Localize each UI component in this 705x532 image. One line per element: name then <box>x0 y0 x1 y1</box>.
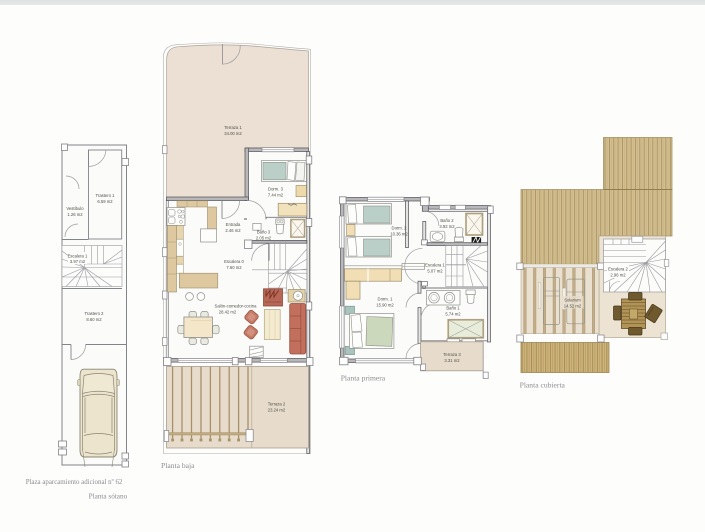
svg-text:Baño 3: Baño 3 <box>257 230 271 235</box>
svg-text:Terraza 3: Terraza 3 <box>443 352 461 357</box>
svg-text:Trastero 1: Trastero 1 <box>96 193 116 198</box>
svg-text:3.31 m2: 3.31 m2 <box>444 358 460 363</box>
svg-text:Escalera 1: Escalera 1 <box>68 254 88 259</box>
svg-text:2.05 m2: 2.05 m2 <box>256 236 272 241</box>
svg-text:Escalera 0: Escalera 0 <box>224 259 244 264</box>
svg-text:Terraza 1: Terraza 1 <box>224 125 242 130</box>
svg-text:10.36 m2: 10.36 m2 <box>390 232 408 237</box>
svg-text:34.00 m2: 34.00 m2 <box>224 131 242 136</box>
svg-text:28.42 m2: 28.42 m2 <box>219 310 237 315</box>
svg-text:7.44 m2: 7.44 m2 <box>268 193 284 198</box>
svg-text:Planta baja: Planta baja <box>161 461 195 470</box>
svg-text:15.90 m2: 15.90 m2 <box>376 303 394 308</box>
svg-text:Entrada: Entrada <box>226 222 241 227</box>
svg-text:Planta sótano: Planta sótano <box>89 493 128 501</box>
svg-text:3.97 m2: 3.97 m2 <box>70 259 86 264</box>
svg-text:Baño 2: Baño 2 <box>440 218 454 223</box>
svg-text:Planta cubierta: Planta cubierta <box>520 380 566 389</box>
svg-text:Terraza 2: Terraza 2 <box>268 402 286 407</box>
svg-text:Escalera 2: Escalera 2 <box>608 267 628 272</box>
svg-text:14.52 m2: 14.52 m2 <box>564 304 582 309</box>
svg-text:Vestíbulo: Vestíbulo <box>66 206 84 211</box>
svg-text:8.60 m2: 8.60 m2 <box>86 317 102 322</box>
svg-text:Baño 1: Baño 1 <box>446 306 460 311</box>
svg-text:5.74 m2: 5.74 m2 <box>445 312 461 317</box>
svg-text:Dorm. 2: Dorm. 2 <box>392 226 408 231</box>
svg-text:2.46 m2: 2.46 m2 <box>225 228 241 233</box>
svg-text:Dorm. 1: Dorm. 1 <box>378 297 394 302</box>
svg-text:7.60 m2: 7.60 m2 <box>226 265 242 270</box>
svg-text:Trastero 2: Trastero 2 <box>85 311 105 316</box>
svg-text:Salón-comedor-cocina: Salón-comedor-cocina <box>215 303 258 308</box>
svg-text:23.24 m2: 23.24 m2 <box>268 408 286 413</box>
svg-text:5.07 m2: 5.07 m2 <box>427 269 443 274</box>
svg-text:3.92 m2: 3.92 m2 <box>439 224 455 229</box>
svg-text:1.26 m2: 1.26 m2 <box>67 212 83 217</box>
svg-text:2.96 m2: 2.96 m2 <box>610 273 626 278</box>
svg-text:Plaza aparcamiento adicional n: Plaza aparcamiento adicional nº 62 <box>26 479 123 486</box>
svg-text:Escalera 1: Escalera 1 <box>425 263 445 268</box>
svg-text:Solarium: Solarium <box>564 298 581 303</box>
svg-text:Planta primera: Planta primera <box>341 373 386 382</box>
svg-text:Dorm. 3: Dorm. 3 <box>268 187 284 192</box>
svg-text:6.59 m2: 6.59 m2 <box>97 199 113 204</box>
